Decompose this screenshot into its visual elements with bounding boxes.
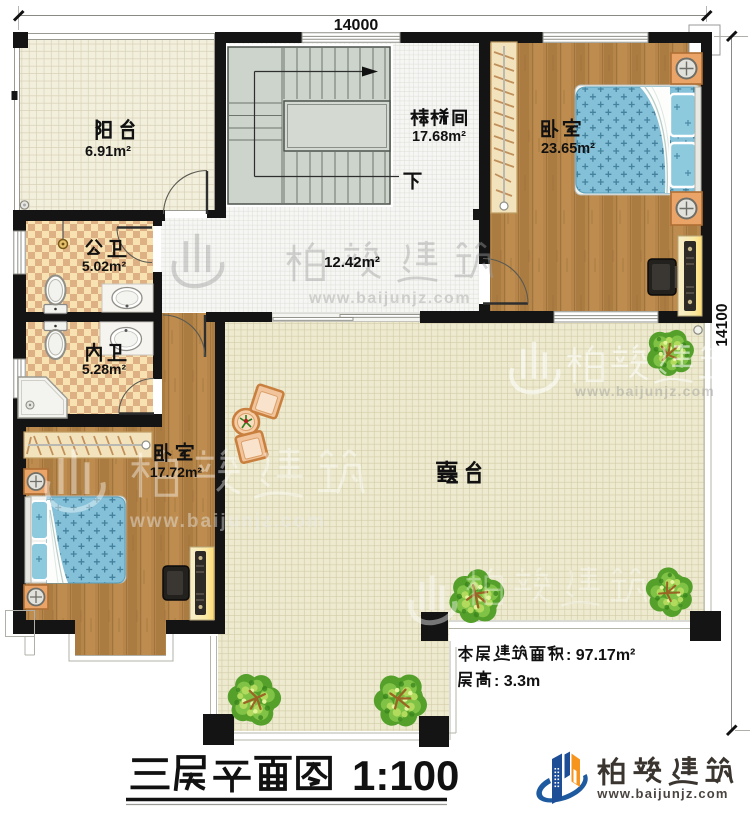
svg-text:14100: 14100 (714, 303, 731, 346)
svg-text:12.42m²: 12.42m² (324, 254, 380, 271)
svg-text:5.02m²: 5.02m² (82, 258, 127, 274)
svg-text:: 3.3m: : 3.3m (494, 673, 540, 690)
svg-text:1:100: 1:100 (352, 752, 459, 799)
svg-text:www.baijunjz.com: www.baijunjz.com (596, 786, 728, 801)
svg-text:6.91m²: 6.91m² (85, 144, 131, 160)
svg-text:23.65m²: 23.65m² (541, 141, 595, 157)
svg-text:: 97.17m²: : 97.17m² (566, 647, 635, 664)
svg-text:www.baijunjz.com: www.baijunjz.com (129, 511, 326, 532)
svg-text:14000: 14000 (334, 17, 379, 34)
svg-text:17.68m²: 17.68m² (412, 129, 466, 145)
svg-text:17.72m²: 17.72m² (150, 464, 202, 480)
svg-text:www.baijunjz.com: www.baijunjz.com (308, 290, 471, 307)
svg-text:www.baijunjz.com: www.baijunjz.com (574, 383, 715, 399)
svg-text:5.28m²: 5.28m² (82, 361, 127, 377)
